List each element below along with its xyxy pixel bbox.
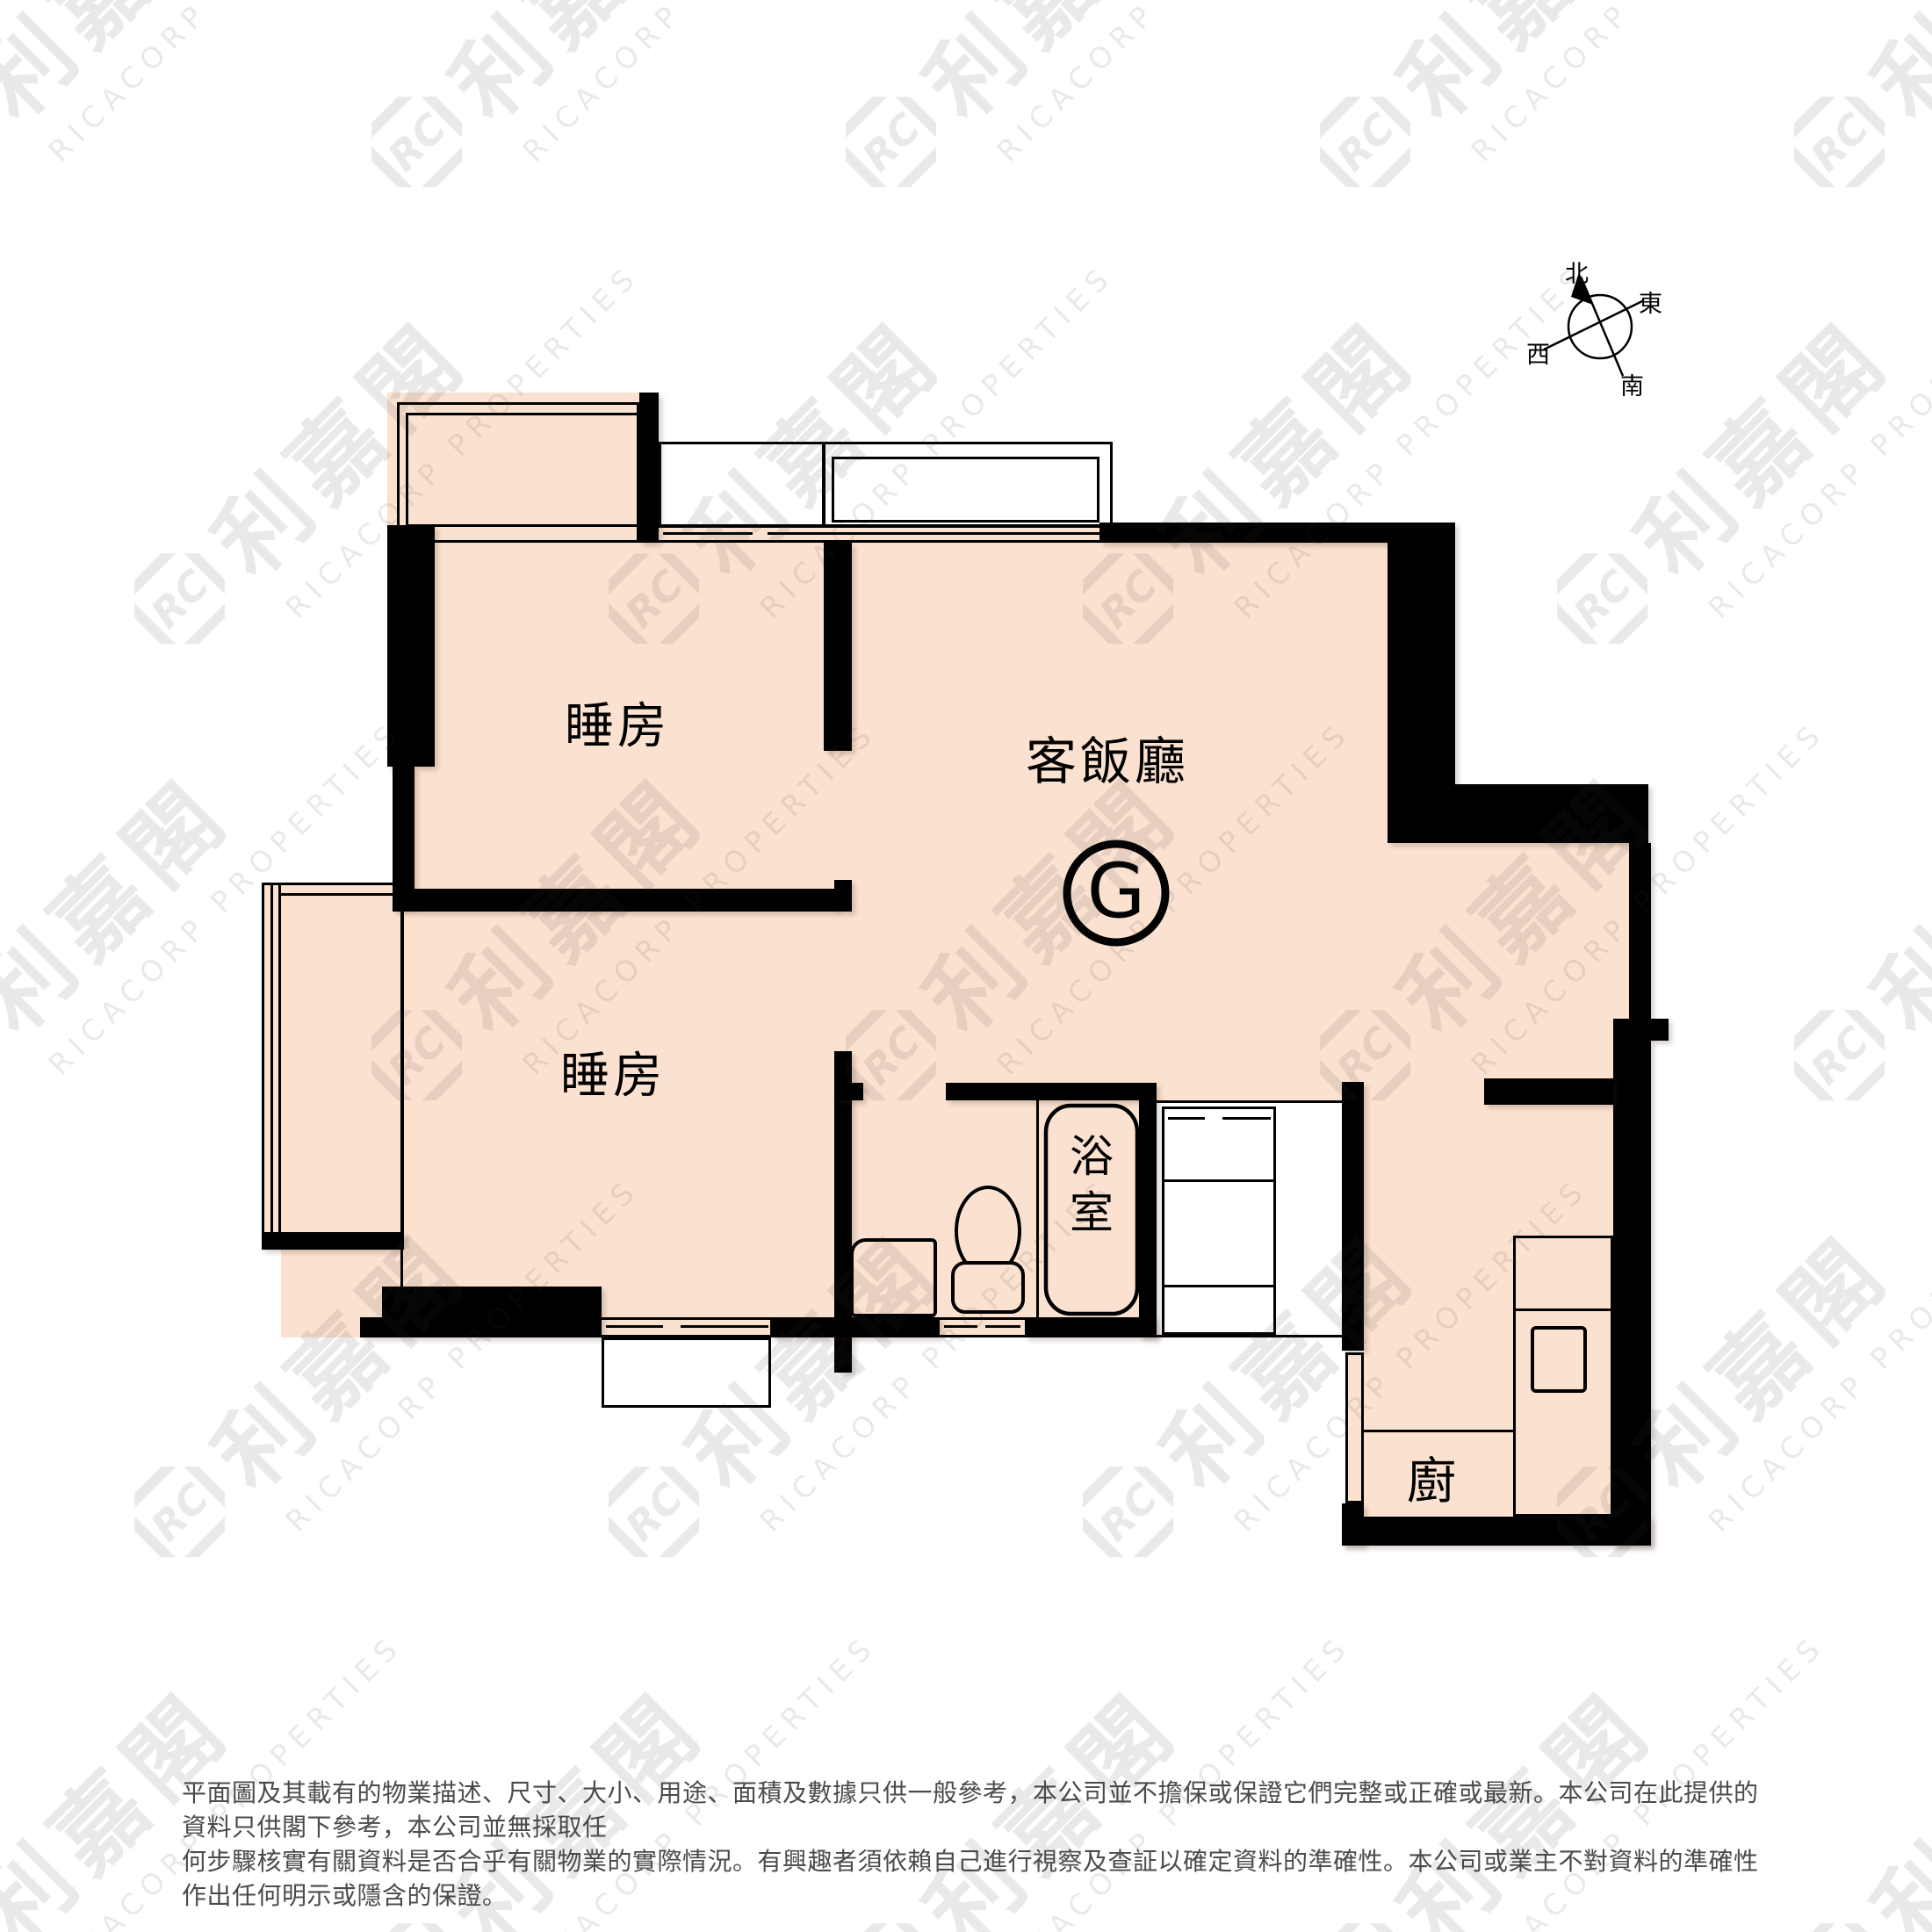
ricacorp-logo-icon: RC [1063,1447,1193,1576]
ricacorp-logo-icon: RC [1775,77,1904,206]
bed2-band-bottom [602,1335,770,1337]
wall [1025,1317,1157,1337]
watermark-name-zh: 利嘉閣 [0,743,256,1056]
wall [262,1232,404,1250]
lightwell-div2 [1162,1285,1276,1287]
wall [382,1287,602,1317]
ricacorp-logo-icon: RC [0,991,7,1120]
wall [1455,784,1648,843]
wall [770,1317,940,1337]
ricacorp-logo-icon: RC [115,1447,244,1576]
wall [1613,1019,1669,1041]
watermark-name-en: RICACORP PROPERTIES [1701,284,1932,624]
lightwell-duct [1162,1107,1276,1335]
watermark-tile: RC利嘉閣RICACORP PROPERTIES [0,0,383,249]
compass-west-label: 西 [1526,335,1550,370]
ricacorp-logo-icon: RC [589,1447,718,1576]
ricacorp-logo-icon: RC [0,77,7,206]
wall [946,1083,1157,1100]
bed2-band-mid-a [606,1325,663,1328]
sill-mid-line-a [663,532,753,535]
watermark-name-en: RICACORP PROPERTIES [1464,0,1805,169]
disclaimer-zh-line2: 何步驟核實有關資料是否合乎有關物業的實際情況。有興趣者須依賴自己進行視察及查証以… [182,1844,1763,1913]
ricacorp-logo-icon: RC [1538,534,1667,663]
ricacorp-logo-icon: RC [0,1904,7,1932]
wall [1613,1041,1651,1546]
bathroom-label: 浴 室 [1042,1135,1141,1235]
ac-platform [602,1337,771,1408]
wall [393,767,415,907]
wall [1484,1078,1613,1105]
wall [1342,1517,1651,1546]
window-divider [822,442,825,527]
compass [1519,246,1669,404]
bathroom-partition [1036,1100,1039,1317]
bathroom-label-char1: 浴 [1070,1135,1114,1179]
lightwell-div1 [1162,1179,1276,1182]
bath-band-mid-a [944,1325,977,1328]
wall [824,543,852,751]
watermark-name-zh: 利嘉閣 [0,0,256,143]
watermark-tile: RC利嘉閣RICACORP PROPERTIES [337,0,856,249]
bay1-frame-inner [406,413,639,527]
toilet [948,1184,1028,1317]
bedroom1-label: 睡房 [565,687,670,758]
bay2-line1 [270,883,273,1250]
bay2-inner-top [281,893,404,896]
watermark-name-zh: 利嘉閣 [1839,0,1932,143]
kitchen-counter-divider [1513,1308,1613,1311]
wall [387,525,435,767]
ricacorp-logo-icon: RC [826,77,955,206]
kitchen-lower-line [1364,1430,1513,1432]
sill-bottom-line [659,540,1099,543]
watermark-name-en: RICACORP PROPERTIES [41,0,382,169]
unit-badge: G [1059,836,1173,950]
watermark-tile: RC利嘉閣RICACORP PROPERTIES [1760,643,1932,1162]
ricacorp-logo-icon: RC [352,77,481,206]
ricacorp-logo-icon: RC [115,534,244,663]
watermark-name-en: RICACORP PROPERTIES [515,0,856,169]
wall [1388,543,1455,843]
bay2-right-line [400,883,403,1287]
living-dining-label: 客飯廳 [1026,720,1189,794]
unit-letter: G [1087,847,1146,935]
wall [1139,1100,1157,1337]
watermark-name-zh: 利嘉閣 [890,0,1204,143]
watermark-name-en: RICACORP PROPERTIES [1701,1197,1932,1538]
watermark-name-zh: 利嘉閣 [1839,743,1932,1056]
kitchen-door-leaf [1345,1352,1364,1503]
bay2-frame-outer [262,883,404,1250]
ricacorp-logo-icon: RC [1775,1904,1904,1932]
wall [1629,843,1651,1036]
bed2-band-mid-b [681,1325,768,1328]
bedroom2-label: 睡房 [560,1036,666,1107]
bay2-line2 [278,883,281,1250]
wall [360,1317,602,1337]
wall [393,889,837,912]
watermark-name-zh: 利嘉閣 [416,0,730,143]
kitchen-label: 廚 [1407,1442,1460,1513]
compass-south-label: 南 [1620,367,1644,401]
watermark-tile: RC利嘉閣RICACORP PROPERTIES [1286,0,1805,249]
wall [639,393,659,543]
living-window-inner-frame [832,457,1099,523]
watermark-tile: RC利嘉閣RICACORP PROPERTIES [1760,1556,1932,1932]
bath-band-mid-b [985,1325,1020,1328]
bay1-sill-line [406,540,639,543]
bath-band-top [940,1317,1025,1320]
wall [1099,523,1455,543]
watermark-name-zh: 利嘉閣 [1365,0,1678,143]
floor-plan-page: G 睡房 睡房 客飯廳 廚 浴 室 北 東 西 南 平面圖及其載有的物業描述、尺… [0,0,1932,1932]
watermark-tile: RC利嘉閣RICACORP PROPERTIES [1760,0,1932,249]
compass-east-label: 東 [1639,285,1662,319]
sill-mid-line-b [768,532,1099,535]
watermark-tile: RC利嘉閣RICACORP PROPERTIES [811,0,1330,249]
disclaimer: 平面圖及其載有的物業描述、尺寸、大小、用途、面積及數據只供一般參考，本公司並不擔… [182,1776,1763,1932]
living-room-floor-east [1388,843,1631,1107]
bath-band-bottom [940,1335,1025,1337]
wall [834,880,852,912]
sill-top-line [659,525,1099,528]
wall [1342,1082,1364,1351]
disclaimer-zh-line1: 平面圖及其載有的物業描述、尺寸、大小、用途、面積及數據只供一般參考，本公司並不擔… [182,1776,1763,1844]
wall [834,1083,863,1100]
kitchen-appliance [1531,1326,1587,1393]
bathroom-label-char2: 室 [1070,1191,1114,1235]
ricacorp-logo-icon: RC [1775,991,1904,1120]
watermark-name-en: RICACORP PROPERTIES [990,0,1330,169]
bed2-band-top [602,1317,770,1320]
compass-north-label: 北 [1565,255,1589,289]
lightwell-top-b [1222,1117,1271,1120]
living-room-floor [821,523,1388,1107]
lightwell-top-a [1168,1117,1205,1120]
ricacorp-logo-icon: RC [1301,77,1430,206]
bathroom-sink-counter [850,1238,937,1317]
watermark-name-zh: 利嘉閣 [1839,1656,1932,1932]
